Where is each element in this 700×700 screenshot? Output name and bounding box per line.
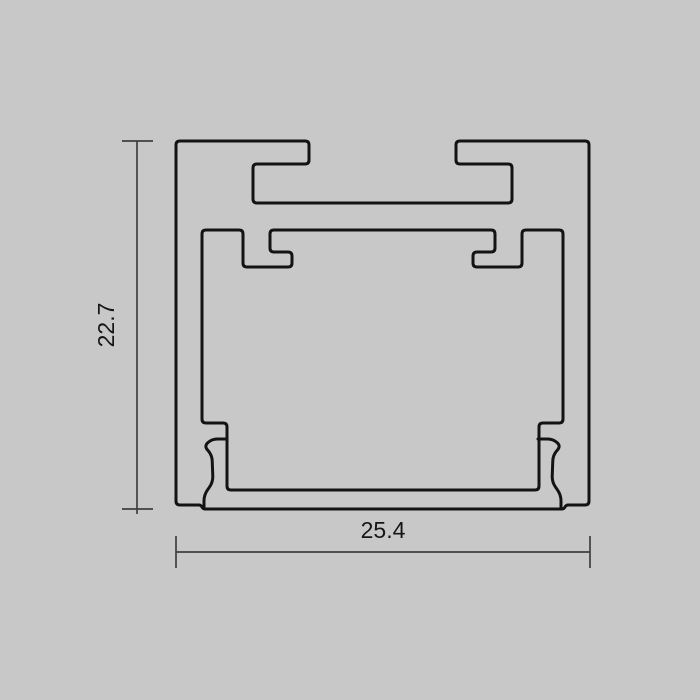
height-dimension-label: 22.7 <box>93 290 119 360</box>
screw-channel-right-path <box>538 439 561 508</box>
outer-contour-path <box>176 141 589 509</box>
screw-channel-left-path <box>204 439 227 508</box>
technical-drawing-canvas: 22.7 25.4 <box>0 0 700 700</box>
width-dimension-label: 25.4 <box>348 517 418 543</box>
inner-cavity-path <box>202 230 563 490</box>
profile-outline-group <box>176 141 589 509</box>
